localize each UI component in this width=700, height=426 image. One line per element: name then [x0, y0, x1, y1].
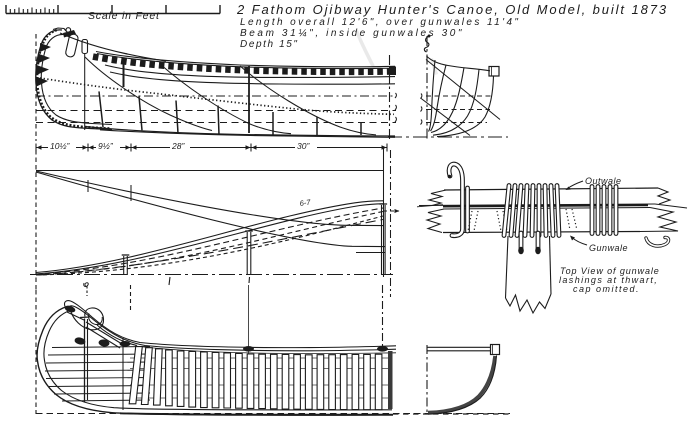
svg-text:Length overall 12'6", over gun: Length overall 12'6", over gunwales 11'4…: [240, 17, 520, 28]
svg-text:28”: 28”: [171, 141, 185, 151]
svg-text:30”: 30”: [297, 141, 310, 151]
svg-text:Beam 31¼", inside gunwales 30": Beam 31¼", inside gunwales 30": [240, 27, 464, 39]
svg-text:Depth 15": Depth 15": [240, 39, 299, 50]
svg-text:Scale in Feet: Scale in Feet: [88, 10, 160, 22]
svg-text:Gunwale: Gunwale: [589, 243, 628, 253]
svg-text:6-7: 6-7: [299, 197, 312, 208]
svg-text:cap omitted.: cap omitted.: [573, 284, 640, 294]
svg-text:9½”: 9½”: [98, 141, 114, 151]
svg-text:2 Fathom Ojibway Hunter's Cano: 2 Fathom Ojibway Hunter's Canoe, Old Mod…: [236, 2, 668, 17]
svg-text:Outwale: Outwale: [585, 176, 622, 186]
svg-text:10½”: 10½”: [50, 141, 71, 151]
